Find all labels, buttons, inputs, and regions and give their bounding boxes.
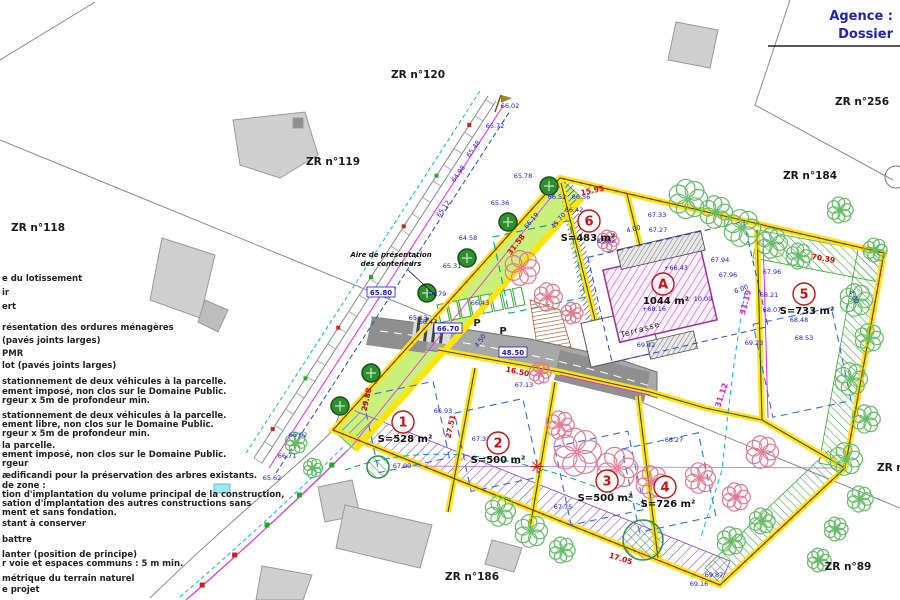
- tree-icon: [825, 517, 849, 541]
- planted-tree-icon: [499, 213, 517, 231]
- tree-icon: [554, 428, 601, 476]
- legend-line: stant à conserver: [2, 519, 87, 529]
- legend-line: e du lotissement: [2, 274, 82, 284]
- spot-elevation-label: 66.62: [289, 431, 308, 439]
- cadastral-parcel-label: ZR n°119: [306, 156, 360, 168]
- tree-icon: [562, 302, 583, 324]
- conserved-tree-icon: [367, 456, 389, 478]
- legend-line: ert: [2, 302, 16, 312]
- spot-elevation-label: 68.53: [795, 334, 814, 342]
- spot-elevation-label: 68.21: [760, 291, 779, 299]
- spot-elevation-label: 67.09: [393, 462, 412, 470]
- legend-line: rgeur x 5m de profondeur min.: [2, 429, 150, 439]
- cadastral-parcel-label: ZR n°186: [445, 571, 499, 583]
- spot-elevation-label: 67.94: [711, 256, 730, 264]
- spot-elevation-label: 69.23: [745, 339, 764, 347]
- utility-marker: [297, 493, 302, 498]
- legend-line: rgeur x 5m de profondeur min.: [2, 396, 150, 406]
- legend-line: PMR: [2, 349, 24, 359]
- spot-elevation-label: 66.43: [471, 299, 490, 307]
- spot-elevation-label: 68.48: [790, 316, 809, 324]
- annotation-label: des conteneurs: [361, 260, 422, 268]
- tree-icon: [746, 436, 778, 469]
- spot-elevation-label: 65.12: [435, 199, 452, 219]
- parcel-area-label: S=733 m²: [780, 306, 835, 317]
- title-block: Agence : Dossier: [768, 9, 900, 46]
- chimney: [293, 118, 303, 128]
- building: [336, 505, 432, 568]
- spot-elevation-label: 69.16: [690, 580, 709, 588]
- planted-tree-icon: [362, 364, 380, 382]
- spot-elevation-label: 66.93: [434, 407, 453, 415]
- spot-elevation-label: 67.27: [649, 226, 668, 234]
- tree-icon: [724, 210, 760, 247]
- boxed-level-label: 48.50: [502, 349, 524, 357]
- spot-elevation-label: 65.36: [491, 199, 510, 207]
- annotation-label: P: [473, 318, 480, 329]
- legend-line: métrique du terrain naturel: [2, 573, 134, 584]
- tree-icon: [304, 458, 323, 478]
- legend-line: ædificandi pour la préservation des arbr…: [2, 470, 257, 481]
- spot-elevation-label: 68.27: [665, 436, 684, 444]
- building: [233, 112, 318, 178]
- spot-elevation-label: 65.78: [514, 172, 533, 180]
- legend-line: ment et sans fondation.: [2, 508, 117, 518]
- parcel-area-label: S=500 m²: [578, 493, 633, 504]
- tree-icon: [549, 537, 575, 563]
- tree-icon: [722, 483, 750, 511]
- spot-elevation-label: 66.71: [278, 452, 297, 460]
- parcel-area-label: S=528 m²: [378, 434, 433, 445]
- spot-elevation-label: 66.42: [565, 206, 584, 214]
- spot-elevation-label: 67.75: [554, 503, 573, 511]
- legend-line: battre: [2, 535, 32, 545]
- parcel-number: 3: [602, 475, 611, 490]
- spot-elevation-label: 67.33: [648, 211, 667, 219]
- spot-elevation-label: 65.72: [486, 122, 505, 130]
- parcel-area-label: S=483 m²: [561, 233, 616, 244]
- building-a-letter: A: [658, 278, 668, 293]
- legend-line: stationnement de deux véhicules à la par…: [2, 376, 226, 387]
- spot-elevation-label: 10.00: [694, 295, 713, 303]
- spot-elevation-label: 67.13: [515, 381, 534, 389]
- spot-elevation-label: 65.31: [443, 262, 462, 270]
- legend-line: ement imposé, non clos sur le Domaine Pu…: [2, 449, 226, 460]
- parcel-number: 5: [799, 288, 808, 303]
- cadastral-parcel-label: ZR n°184: [783, 170, 837, 182]
- building-a-area: 1044 m²: [643, 296, 689, 307]
- spot-elevation-label: 67.96: [719, 271, 738, 279]
- spot-elevation-label: +66.43: [664, 264, 688, 272]
- boxed-level-label: 65.80: [370, 289, 392, 297]
- spot-elevation-label: 64.58: [459, 234, 478, 242]
- utility-marker: [200, 583, 205, 588]
- legend-line: (pavés joints larges): [2, 335, 101, 346]
- cadastral-parcel-label: ZR n°256: [835, 96, 889, 108]
- annotation-label: P: [499, 326, 506, 337]
- building: [256, 566, 312, 600]
- utility-marker: [435, 174, 439, 178]
- spot-elevation-label: 65.62: [263, 474, 282, 482]
- dimension-label-red: 27.51: [444, 414, 458, 439]
- spot-elevation-label: 66.02: [501, 102, 520, 110]
- benchmark-star: ✳: [529, 457, 544, 478]
- star-icon: ✳: [529, 457, 544, 478]
- utility-marker: [402, 224, 406, 228]
- building: [485, 540, 522, 572]
- cadastral-parcel-label: ZR n°89: [825, 561, 872, 573]
- utility-marker: [303, 376, 307, 380]
- legend-line: ir: [2, 288, 10, 298]
- parcel-area-label: S=726 m²: [641, 499, 696, 510]
- utility-marker: [232, 553, 237, 558]
- spot-elevation-label: 68.07: [763, 306, 782, 314]
- legend-line: r voie et espaces communs : 5 m min.: [2, 559, 183, 569]
- plan-canvas: Agence : Dossier ZR n°120ZR n°119ZR n°11…: [0, 0, 900, 600]
- spot-elevation-label: 66.52: [548, 193, 567, 201]
- legend-line: résentation des ordures ménagères: [2, 322, 174, 333]
- tree-icon: [847, 486, 873, 512]
- spot-elevation-label: 69.42: [637, 341, 656, 349]
- tree-icon: [827, 197, 853, 223]
- legend-line: rgeur: [2, 459, 29, 469]
- utility-marker: [336, 326, 340, 330]
- utility-marker: [467, 123, 471, 127]
- conserved-tree-icon: [623, 520, 663, 560]
- parcel-number: 2: [493, 437, 502, 452]
- parcel-area-label: S=500 m²: [471, 455, 526, 466]
- site-plan-page: Agence : Dossier ZR n°120ZR n°119ZR n°11…: [0, 0, 900, 600]
- cadastral-parcel-label: ZR n°120: [391, 69, 445, 81]
- annotation-label: Aire de présentation: [349, 251, 431, 259]
- spot-elevation-label: 69.87: [705, 571, 724, 579]
- utility-marker: [265, 523, 270, 528]
- tree-icon: [485, 496, 515, 526]
- dossier-label: Dossier: [838, 27, 893, 42]
- dimension-label-magenta: 31.12: [713, 382, 729, 409]
- legend-line: e projet: [2, 585, 40, 595]
- legend-panel: e du lotissementirertrésentation des ord…: [2, 274, 284, 595]
- agence-label: Agence :: [829, 9, 893, 24]
- utility-marker: [369, 275, 373, 279]
- planted-tree-icon: [331, 397, 349, 415]
- cadastral-parcel-label: ZR n°: [877, 462, 900, 474]
- utility-marker: [271, 427, 275, 431]
- utility-marker: [329, 463, 334, 468]
- spot-elevation-label: 65.48: [465, 139, 482, 159]
- cadastral-parcel-label: ZR n°118: [11, 222, 65, 234]
- boxed-level-label: 66.70: [437, 325, 459, 333]
- legend-line: lot (pavés joints larges): [2, 360, 116, 371]
- parcel-number: 6: [584, 215, 593, 230]
- spot-elevation-label: 65.13: [409, 314, 428, 322]
- parcel-number: 1: [398, 416, 407, 431]
- spot-elevation-label: 67.96: [763, 268, 782, 276]
- parcel-number: 4: [660, 481, 669, 496]
- building: [668, 22, 718, 68]
